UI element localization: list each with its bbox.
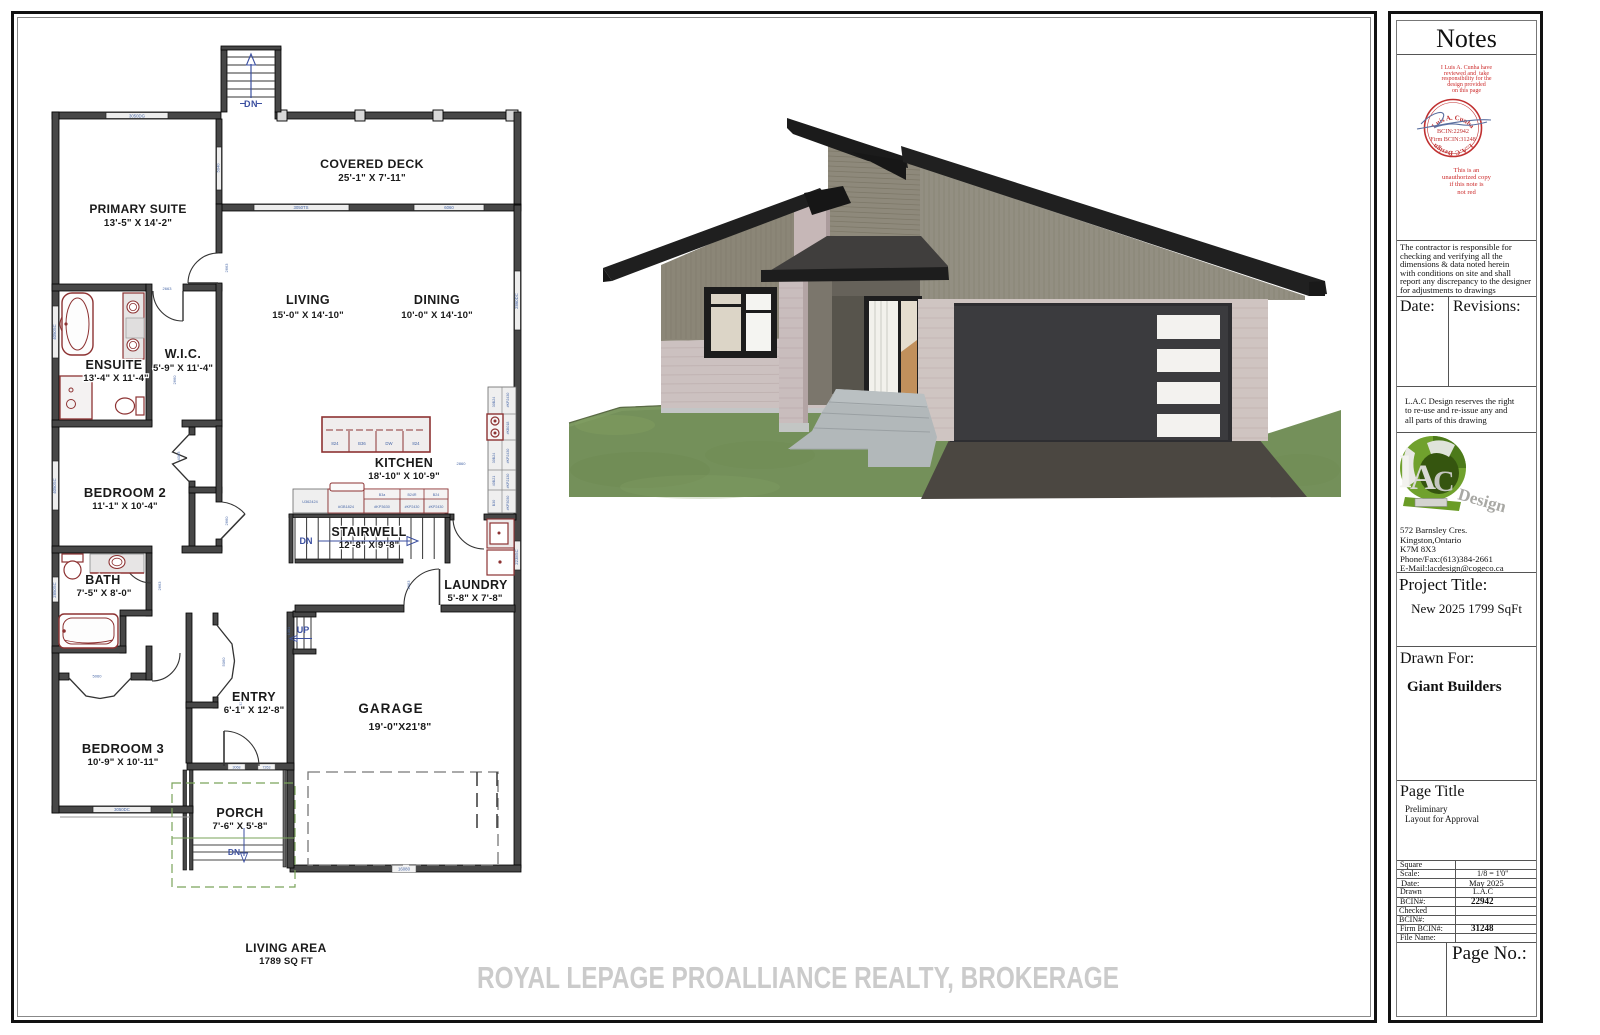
svg-text:U362424: U362424 bbox=[302, 500, 317, 504]
svg-text:2660: 2660 bbox=[224, 516, 229, 526]
svg-text:C: C bbox=[1433, 465, 1455, 498]
svg-text:19'-0"X21'8": 19'-0"X21'8" bbox=[369, 721, 432, 733]
svg-text:5'-8" X 7'-8": 5'-8" X 7'-8" bbox=[447, 593, 502, 604]
svg-text:PORCH: PORCH bbox=[216, 806, 263, 820]
svg-text:BATH: BATH bbox=[85, 573, 120, 587]
svg-text:UP: UP bbox=[297, 625, 310, 635]
svg-text:COVERED DECK: COVERED DECK bbox=[320, 157, 424, 171]
svg-text:10'-0" X 14'-10": 10'-0" X 14'-10" bbox=[401, 310, 473, 321]
svg-text:1789 SQ FT: 1789 SQ FT bbox=[259, 956, 313, 967]
svg-text:4063: 4063 bbox=[176, 451, 181, 461]
svg-text:18'-10" X 10'-9": 18'-10" X 10'-9" bbox=[368, 471, 440, 482]
svg-text:Firm BCIN:31248: Firm BCIN:31248 bbox=[1430, 136, 1476, 143]
svg-text:30B24: 30B24 bbox=[492, 397, 496, 407]
svg-text:5040: 5040 bbox=[216, 163, 221, 173]
svg-text:#KP3630: #KP3630 bbox=[374, 505, 390, 509]
svg-text:824: 824 bbox=[331, 441, 339, 446]
svg-text:B30: B30 bbox=[492, 500, 496, 506]
svg-text:5'-9" X 11'-4": 5'-9" X 11'-4" bbox=[153, 363, 213, 374]
svg-text:6'-1" X 12'-8": 6'-1" X 12'-8" bbox=[224, 705, 285, 716]
svg-text:#KP2430: #KP2430 bbox=[506, 449, 510, 464]
svg-text:2860DC: 2860DC bbox=[514, 293, 519, 309]
svg-text:#KB018: #KB018 bbox=[506, 422, 510, 435]
svg-text:W.I.C.: W.I.C. bbox=[165, 347, 201, 361]
svg-text:2663: 2663 bbox=[224, 263, 229, 273]
svg-text:BCIN:22942: BCIN:22942 bbox=[1437, 128, 1469, 135]
svg-text:ENTRY: ENTRY bbox=[232, 690, 276, 704]
svg-text:2663: 2663 bbox=[157, 581, 162, 591]
svg-text:DN: DN bbox=[300, 536, 313, 546]
svg-text:13'-5" X 14'-2": 13'-5" X 14'-2" bbox=[104, 218, 172, 229]
svg-text:1351: 1351 bbox=[287, 627, 291, 635]
svg-text:5060: 5060 bbox=[221, 657, 226, 667]
svg-text:#KP2430: #KP2430 bbox=[405, 505, 420, 509]
svg-text:B24R: B24R bbox=[408, 493, 417, 497]
svg-text:ROYAL LEPAGE PROALLIANCE REALT: ROYAL LEPAGE PROALLIANCE REALTY, BROKERA… bbox=[477, 961, 1119, 995]
svg-text:LIVING: LIVING bbox=[286, 293, 330, 307]
svg-text:ENSUITE: ENSUITE bbox=[86, 358, 143, 372]
svg-text:15'-0" X 14'-10": 15'-0" X 14'-10" bbox=[272, 310, 344, 321]
svg-text:6060: 6060 bbox=[444, 205, 454, 210]
svg-text:4050SC: 4050SC bbox=[52, 478, 57, 494]
svg-text:BEDROOM 2: BEDROOM 2 bbox=[84, 485, 166, 500]
svg-text:PRIMARY SUITE: PRIMARY SUITE bbox=[89, 202, 186, 216]
svg-text:40B21: 40B21 bbox=[492, 476, 496, 486]
svg-text:2238SC: 2238SC bbox=[514, 549, 519, 565]
svg-text:DN: DN bbox=[228, 847, 240, 857]
svg-text:2860: 2860 bbox=[457, 461, 467, 466]
svg-text:DN: DN bbox=[244, 99, 258, 109]
svg-text:2660: 2660 bbox=[172, 375, 177, 385]
svg-text:13'-4" X 11'-4": 13'-4" X 11'-4" bbox=[83, 373, 149, 384]
svg-text:L.A.C Design: L.A.C Design bbox=[1432, 142, 1474, 156]
svg-text:824: 824 bbox=[412, 441, 420, 446]
svg-text:16080: 16080 bbox=[398, 867, 411, 872]
svg-text:B3a: B3a bbox=[379, 493, 385, 497]
svg-text:30B24: 30B24 bbox=[492, 453, 496, 463]
svg-text:12'-8" X 9'-8": 12'-8" X 9'-8" bbox=[339, 540, 400, 551]
svg-text:3050DG: 3050DG bbox=[129, 114, 146, 119]
svg-text:#KP2430: #KP2430 bbox=[506, 393, 510, 408]
svg-text:DW: DW bbox=[385, 441, 393, 446]
svg-text:Design: Design bbox=[1456, 485, 1509, 517]
svg-text:DINING: DINING bbox=[414, 293, 460, 307]
svg-text:2663: 2663 bbox=[163, 286, 173, 291]
svg-text:4050SC: 4050SC bbox=[52, 324, 57, 340]
svg-text:25'-1" X 7'-11": 25'-1" X 7'-11" bbox=[338, 173, 406, 184]
svg-text:#KP2430: #KP2430 bbox=[429, 505, 444, 509]
svg-text:STAIRWELL: STAIRWELL bbox=[331, 525, 406, 539]
svg-text:B24: B24 bbox=[433, 493, 439, 497]
svg-text:#KP2130: #KP2130 bbox=[506, 474, 510, 489]
svg-text:7'-6" X 5'-8": 7'-6" X 5'-8" bbox=[212, 821, 267, 832]
svg-text:BEDROOM 3: BEDROOM 3 bbox=[82, 741, 164, 756]
svg-text:7'-5" X 8'-0": 7'-5" X 8'-0" bbox=[76, 588, 131, 599]
svg-text:#GB1824: #GB1824 bbox=[338, 505, 354, 509]
svg-text:2850SC: 2850SC bbox=[52, 582, 57, 598]
svg-text:LAUNDRY: LAUNDRY bbox=[444, 578, 508, 592]
svg-text:LIVING AREA: LIVING AREA bbox=[245, 941, 326, 955]
svg-text:GARAGE: GARAGE bbox=[358, 701, 423, 716]
svg-text:7263: 7263 bbox=[263, 766, 271, 770]
svg-text:KITCHEN: KITCHEN bbox=[375, 456, 433, 470]
svg-text:B36: B36 bbox=[358, 441, 366, 446]
svg-text:11'-1" X 10'-4": 11'-1" X 10'-4" bbox=[92, 501, 158, 512]
svg-text:10'-9" X 10'-11": 10'-9" X 10'-11" bbox=[88, 757, 159, 768]
svg-text:3050TS: 3050TS bbox=[293, 205, 308, 210]
svg-text:5060: 5060 bbox=[93, 674, 103, 679]
svg-text:3068: 3068 bbox=[233, 766, 241, 770]
svg-text:2663: 2663 bbox=[406, 580, 411, 590]
svg-text:#KP3030: #KP3030 bbox=[506, 496, 510, 511]
svg-text:3050DC: 3050DC bbox=[114, 807, 130, 812]
